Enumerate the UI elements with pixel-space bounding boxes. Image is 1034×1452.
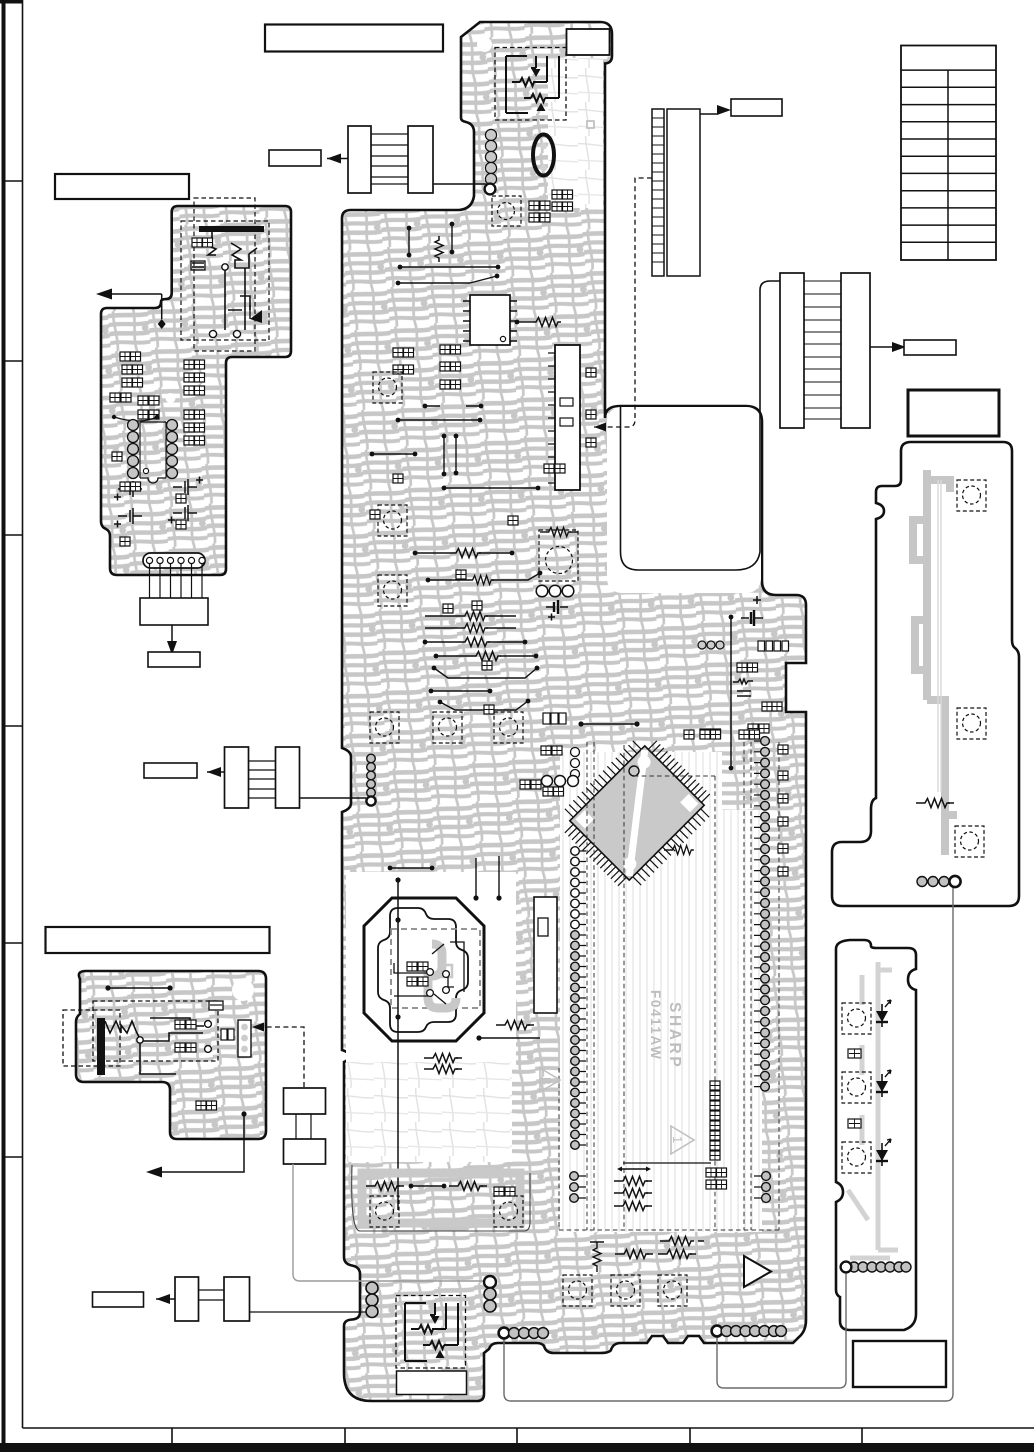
svg-text:1: 1 — [670, 1136, 685, 1143]
svg-text:B: B — [539, 1077, 553, 1085]
svg-text:SHARP: SHARP — [666, 1002, 683, 1069]
svg-text:F0411AW: F0411AW — [648, 990, 663, 1060]
